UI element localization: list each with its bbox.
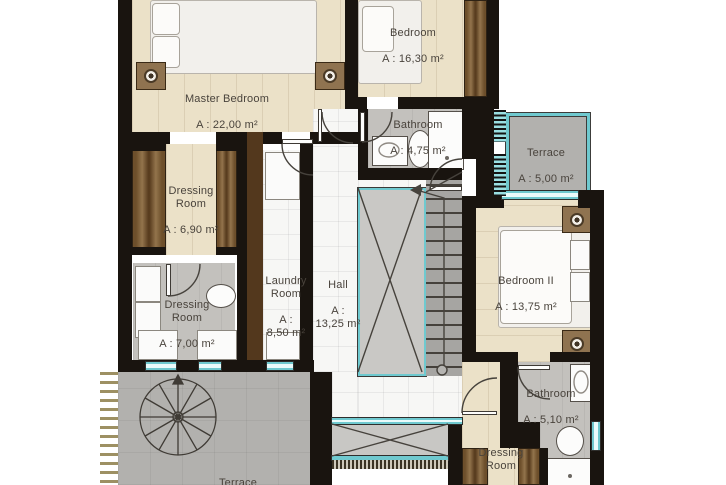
bedroom-wardrobe xyxy=(464,0,487,97)
cabinet xyxy=(135,266,161,302)
wall xyxy=(118,0,132,372)
headboard-cushion xyxy=(570,272,590,302)
room-label-terrace-1: Terrace A : 5,00 m² xyxy=(518,134,573,199)
room-name: Dressing Room xyxy=(478,447,523,473)
room-label-master-bedroom: Master Bedroom A : 22,00 m² xyxy=(185,80,269,145)
wall xyxy=(462,352,500,362)
window xyxy=(267,362,293,370)
room-name: Hall xyxy=(315,279,360,292)
room-label-bathroom-2: Bathroom A : 5,10 m² xyxy=(523,375,578,440)
terrace-2-floor xyxy=(118,372,310,485)
room-name: Terrace xyxy=(219,477,257,485)
door-leaf xyxy=(462,411,497,415)
room-area: A : 4,75 m² xyxy=(390,145,445,158)
wall xyxy=(132,247,166,255)
door-leaf xyxy=(360,112,365,142)
railing-hatch xyxy=(332,460,448,469)
wall xyxy=(487,0,499,100)
lamp-icon xyxy=(570,213,584,227)
pergola-louvers xyxy=(100,372,118,485)
room-name: Master Bedroom xyxy=(185,93,269,106)
nightstand xyxy=(315,62,345,90)
window xyxy=(592,422,600,450)
wall xyxy=(132,144,166,151)
louver-shutter xyxy=(494,154,506,196)
room-area: A : 8,50 m² xyxy=(265,314,306,340)
wall xyxy=(216,144,237,151)
dressing-1-wardrobe-left xyxy=(132,150,166,248)
shower xyxy=(545,458,592,485)
room-name: Dressing Room xyxy=(159,299,214,325)
lamp-icon xyxy=(144,69,158,83)
wall xyxy=(237,132,247,372)
wall xyxy=(578,190,590,208)
room-area: A : 5,00 m² xyxy=(518,173,573,186)
floor-plan: Master Bedroom A : 22,00 m² Bedroom A : … xyxy=(0,0,726,485)
nightstand xyxy=(136,62,166,90)
lamp-icon xyxy=(570,337,584,351)
room-name: Bathroom xyxy=(523,388,578,401)
room-area: A : 13,25 m² xyxy=(315,305,360,331)
headboard-cushion xyxy=(570,240,590,270)
room-area: A : 5,10 m² xyxy=(523,414,578,427)
room-label-dressing-3: Dressing Room A : 3,70 m² xyxy=(478,434,523,485)
dressing-1-wardrobe-right xyxy=(216,150,237,248)
room-area: A : 7,00 m² xyxy=(159,338,214,351)
room-label-dressing-1: Dressing Room A : 6,90 m² xyxy=(163,172,218,250)
door-leaf xyxy=(430,186,462,191)
door-leaf xyxy=(518,365,550,370)
wall xyxy=(500,352,518,422)
room-name: Terrace xyxy=(518,147,573,160)
laundry-counter xyxy=(265,152,300,200)
wall xyxy=(345,97,367,109)
hall-floor-south xyxy=(332,372,358,418)
wall-wood-panel xyxy=(247,132,263,372)
louver-shutter xyxy=(494,110,506,142)
door-leaf xyxy=(282,139,313,144)
wall xyxy=(216,247,237,255)
room-label-laundry: Laundry Room A : 8,50 m² xyxy=(265,262,306,353)
wall xyxy=(345,0,358,97)
wall xyxy=(448,424,462,485)
room-name: Bedroom II xyxy=(495,275,557,288)
room-label-hall: Hall A : 13,25 m² xyxy=(315,266,360,344)
stairwell-void xyxy=(358,188,426,376)
wall xyxy=(550,352,590,362)
lamp-icon xyxy=(323,69,337,83)
room-label-bedroom-2: Bedroom II A : 13,75 m² xyxy=(495,262,557,327)
window xyxy=(332,418,462,424)
room-label-bathroom-1: Bathroom A : 4,75 m² xyxy=(390,106,445,171)
wall xyxy=(462,97,494,159)
room-name: Dressing Room xyxy=(163,185,218,211)
room-area: A : 22,00 m² xyxy=(185,119,269,132)
room-name: Bathroom xyxy=(390,119,445,132)
room-label-bedroom: Bedroom A : 16,30 m² xyxy=(382,14,444,79)
room-area: A : 13,75 m² xyxy=(495,301,557,314)
wall xyxy=(540,448,548,485)
room-area: A : 6,90 m² xyxy=(163,224,218,237)
room-name: Bedroom xyxy=(382,27,444,40)
room-label-dressing-2: Dressing Room A : 7,00 m² xyxy=(159,286,214,364)
nightstand xyxy=(562,206,592,233)
staircase xyxy=(426,172,462,376)
wall xyxy=(462,196,476,362)
wall xyxy=(310,372,332,485)
wall xyxy=(118,132,170,144)
skylight-panel xyxy=(332,424,448,456)
room-name: Laundry Room xyxy=(265,275,306,301)
room-area: A : 16,30 m² xyxy=(382,53,444,66)
room-label-terrace-2: Terrace xyxy=(219,464,257,485)
pillow xyxy=(152,3,180,35)
door-leaf xyxy=(318,109,322,142)
